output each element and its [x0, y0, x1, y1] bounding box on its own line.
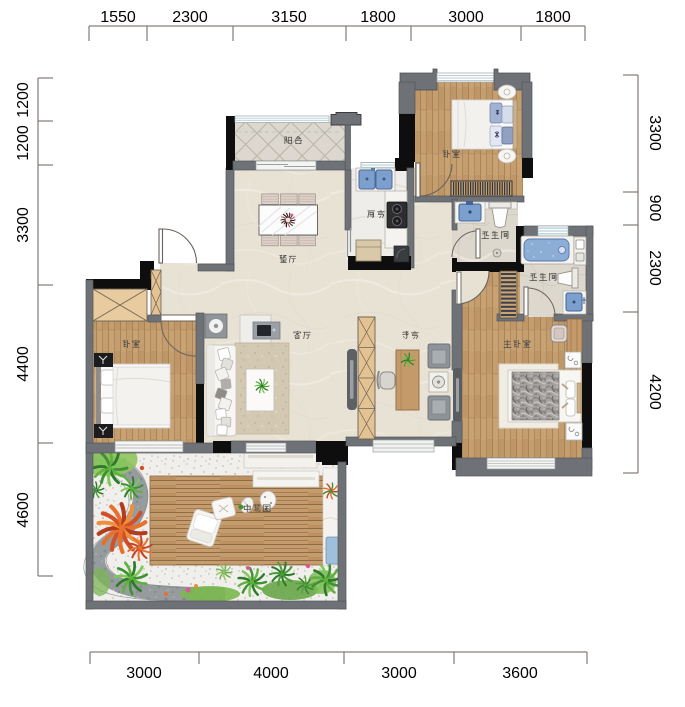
- svg-text:3600: 3600: [502, 665, 538, 682]
- svg-text:3000: 3000: [126, 665, 162, 682]
- svg-text:4400: 4400: [15, 346, 32, 382]
- svg-text:2300: 2300: [646, 250, 663, 286]
- svg-text:3150: 3150: [271, 9, 307, 26]
- svg-text:1200: 1200: [15, 125, 32, 161]
- svg-text:4600: 4600: [15, 492, 32, 528]
- svg-text:3000: 3000: [381, 665, 417, 682]
- svg-text:1550: 1550: [100, 9, 136, 26]
- svg-text:1200: 1200: [15, 82, 32, 118]
- svg-text:1800: 1800: [360, 9, 396, 26]
- svg-text:3000: 3000: [448, 9, 484, 26]
- svg-text:3300: 3300: [646, 115, 663, 151]
- svg-text:2300: 2300: [172, 9, 208, 26]
- svg-text:900: 900: [646, 195, 663, 222]
- svg-text:1800: 1800: [535, 9, 571, 26]
- svg-text:4200: 4200: [646, 374, 663, 410]
- svg-text:4000: 4000: [253, 665, 289, 682]
- svg-text:3300: 3300: [15, 207, 32, 243]
